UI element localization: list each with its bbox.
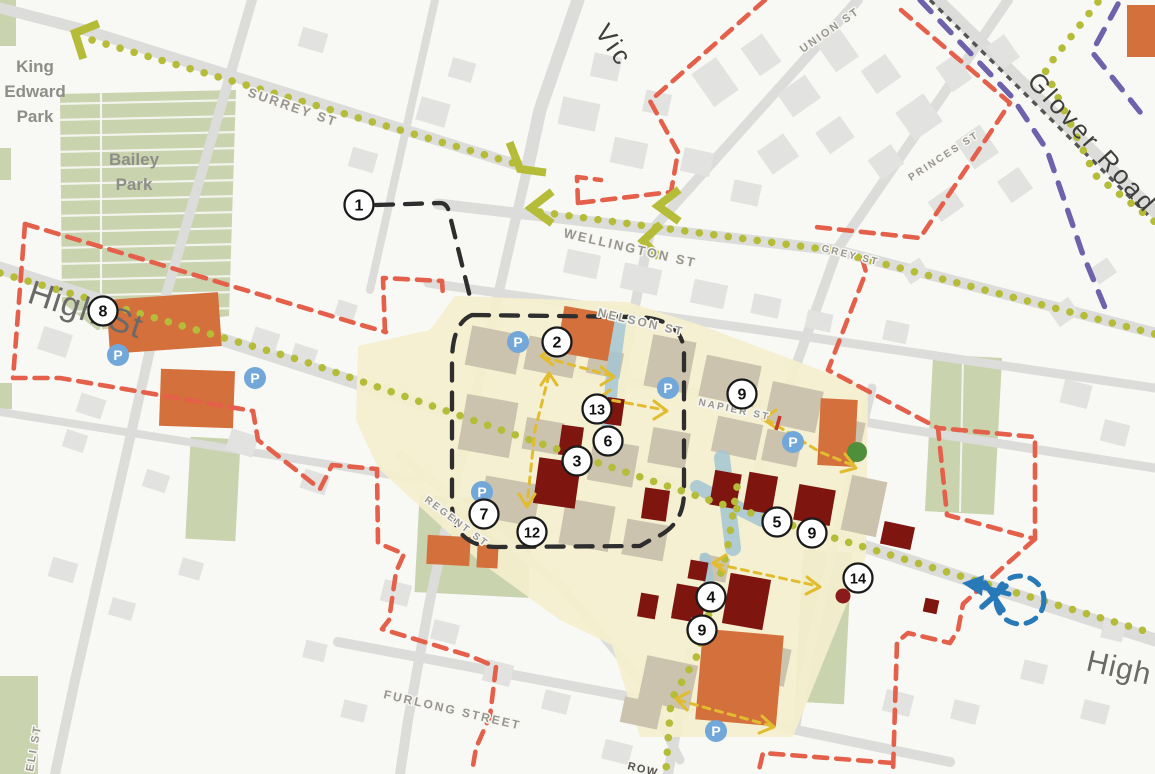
marker-number: 3	[573, 454, 582, 471]
gray-buildings-item	[340, 699, 368, 722]
marker-number: 8	[99, 304, 108, 321]
gray-buildings-item	[563, 249, 601, 280]
gray-buildings-item	[868, 144, 905, 180]
map-marker-2[interactable]: 2	[543, 328, 572, 357]
map-marker-7[interactable]: 7	[470, 500, 499, 529]
marker-number: 4	[707, 590, 716, 607]
parking-letter: P	[513, 334, 522, 350]
marker-number: 14	[850, 572, 866, 588]
gray-buildings-item	[757, 133, 799, 174]
gray-buildings-item	[741, 34, 782, 77]
gray-buildings-item	[108, 597, 136, 621]
marker-number: 1	[355, 198, 364, 215]
gray-buildings-item	[348, 147, 379, 173]
street-label-row-street: ROW	[626, 760, 659, 774]
gray-buildings-item	[37, 326, 73, 358]
marker-number: 12	[524, 526, 540, 542]
gray-buildings-item	[815, 116, 854, 155]
map-marker-4[interactable]: 4	[697, 583, 726, 612]
parking-letter: P	[477, 484, 486, 500]
parking-letter: P	[250, 370, 259, 386]
orange-buildings-item	[426, 535, 470, 566]
gray-buildings-item	[430, 619, 460, 645]
gray-buildings-item	[142, 469, 170, 494]
tan-buildings-item	[621, 519, 669, 562]
gray-buildings-item	[861, 54, 902, 94]
darkred-buildings-item	[923, 598, 940, 615]
parking-icon[interactable]: P	[107, 344, 129, 366]
map-marker-1[interactable]: 1	[345, 191, 374, 220]
gray-buildings-item	[730, 179, 762, 206]
gray-buildings-item	[558, 96, 601, 131]
gray-buildings-item	[334, 299, 358, 320]
marker-number: 2	[553, 335, 562, 352]
map-marker-14[interactable]: 14	[844, 564, 873, 593]
gray-buildings-item	[928, 186, 965, 222]
parking-icon[interactable]: P	[657, 377, 679, 399]
gray-buildings-item	[997, 167, 1033, 203]
map-marker-5[interactable]: 5	[763, 508, 792, 537]
gray-buildings-item	[302, 640, 328, 663]
darkred-dot	[836, 589, 851, 604]
parking-icon[interactable]: P	[244, 367, 266, 389]
area-label-king-edward-park: Park	[17, 107, 54, 126]
map-marker-9[interactable]: 9	[728, 380, 757, 409]
darkred-buildings-item	[641, 487, 670, 521]
marker-number: 13	[589, 403, 605, 419]
marker-number: 9	[738, 387, 747, 404]
marker-number: 9	[698, 623, 707, 640]
parking-letter: P	[788, 434, 797, 450]
street-label-high-st-east: High S	[1083, 645, 1155, 699]
map-marker-3[interactable]: 3	[563, 447, 592, 476]
map-marker-12[interactable]: 12	[518, 518, 547, 547]
gray-buildings-item	[610, 137, 649, 170]
gray-buildings-item	[986, 34, 1020, 70]
gray-buildings-item	[691, 57, 739, 107]
map-marker-9[interactable]: 9	[798, 519, 827, 548]
area-label-bailey-park: Park	[116, 175, 153, 194]
marker-number: 6	[604, 434, 613, 451]
map-marker-6[interactable]: 6	[594, 427, 623, 456]
marker-number: 5	[773, 515, 782, 532]
gray-buildings-item	[415, 96, 450, 127]
area-label-bailey-park: Bailey	[109, 150, 160, 169]
darkred-buildings-item	[687, 560, 708, 582]
area-label-king-edward-park: King	[16, 57, 54, 76]
gray-buildings-item	[882, 689, 914, 717]
gray-buildings-item	[750, 293, 782, 318]
parking-letter: P	[113, 347, 122, 363]
gray-buildings-item	[1100, 419, 1131, 447]
map-marker-9[interactable]: 9	[688, 616, 717, 645]
gray-buildings-item	[541, 689, 571, 715]
gray-buildings-item	[620, 262, 663, 295]
map-canvas[interactable]: SURREY STWELLINGTON STNELSON STNAPIER ST…	[0, 0, 1155, 774]
gray-buildings-item	[690, 279, 728, 310]
gray-buildings-item	[1080, 699, 1110, 725]
gray-buildings-item	[448, 57, 477, 83]
parking-letter: P	[711, 723, 720, 739]
gray-buildings-item	[680, 147, 714, 177]
gray-buildings-item	[882, 320, 910, 345]
darkred-buildings-item	[880, 521, 915, 550]
area-label-king-edward-park: Edward	[4, 82, 65, 101]
gray-buildings-item	[178, 557, 204, 580]
parking-icon[interactable]: P	[705, 720, 727, 742]
marker-number: 9	[808, 526, 817, 543]
gray-buildings-item	[48, 557, 79, 583]
map-marker-13[interactable]: 13	[583, 395, 612, 424]
gray-buildings-item	[76, 392, 107, 419]
gray-buildings-item	[1060, 379, 1093, 409]
gray-buildings-item	[1020, 659, 1048, 684]
parking-letter: P	[663, 380, 672, 396]
parking-icon[interactable]: P	[782, 431, 804, 453]
gray-buildings-item	[298, 27, 329, 53]
parking-icon[interactable]: P	[507, 331, 529, 353]
map-marker-8[interactable]: 8	[89, 297, 118, 326]
gray-buildings-item	[62, 429, 88, 453]
orange-buildings-item	[1127, 5, 1155, 57]
gray-buildings-item	[950, 699, 980, 725]
marker-number: 7	[480, 507, 489, 524]
framework-map-svg: SURREY STWELLINGTON STNELSON STNAPIER ST…	[0, 0, 1155, 774]
